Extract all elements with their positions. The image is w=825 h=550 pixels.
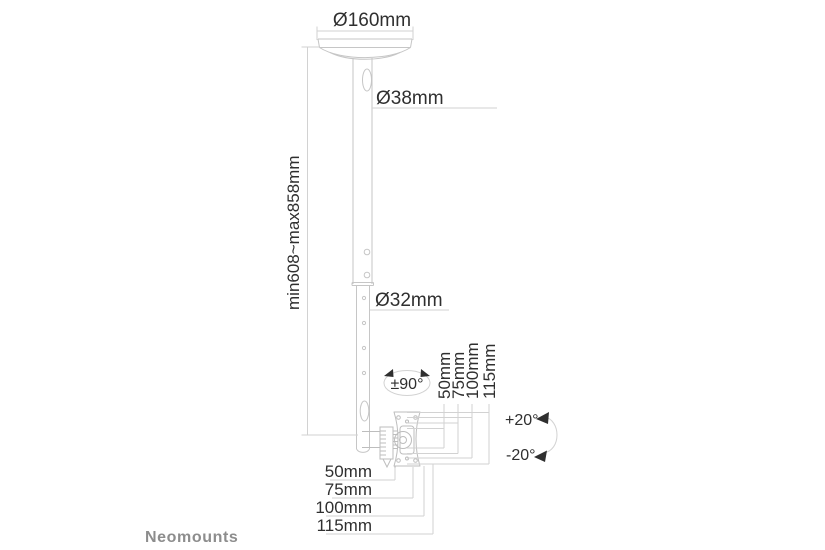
- height-range-label: min608~max858mm: [284, 156, 303, 311]
- upper-pole-diameter-label: Ø38mm: [376, 88, 444, 109]
- height-hole: [362, 371, 365, 374]
- vesa-horizontal-label-75: 75mm: [325, 480, 372, 499]
- ceiling-mount-diagram: Ø160mm Ø38mm Ø32mm min608~max858mm ±9: [0, 0, 825, 550]
- tilt-up-label: +20°: [505, 412, 539, 429]
- rotation-label: ±90°: [391, 376, 424, 393]
- brand-logo: Neomounts: [145, 529, 238, 546]
- lower-pole-diameter-dimension: Ø32mm: [370, 290, 449, 311]
- height-hole: [362, 296, 365, 299]
- vesa-screw-hole: [414, 459, 418, 463]
- cable-hole-top: [363, 69, 372, 91]
- adjust-hole: [364, 249, 370, 255]
- vesa-horizontal-label-115: 115mm: [317, 516, 372, 535]
- upper-pole-drawing: [352, 58, 374, 286]
- plate-diameter-label: Ø160mm: [333, 10, 411, 31]
- tilt-arrow-down-icon: [534, 451, 547, 463]
- lower-pole-drawing: [357, 286, 370, 453]
- vesa-horizontal-dimensions: 50mm 75mm 100mm 115mm: [315, 462, 433, 535]
- rotation-indicator: ±90°: [384, 369, 430, 396]
- height-hole: [362, 346, 365, 349]
- vesa-vertical-label-115: 115mm: [480, 344, 499, 399]
- vesa-screw-hole: [397, 459, 401, 463]
- vesa-screw-hole: [397, 416, 401, 420]
- cable-hole-bottom: [360, 401, 369, 421]
- vesa-vertical-dimensions: 50mm 75mm 100mm 115mm: [407, 342, 499, 464]
- mount-head-drawing: [362, 412, 420, 467]
- lower-pole-diameter-label: Ø32mm: [375, 290, 443, 311]
- tilt-down-label: -20°: [506, 447, 536, 464]
- tilt-indicator: +20° -20°: [505, 412, 557, 464]
- vesa-horizontal-label-50: 50mm: [325, 462, 372, 481]
- adjust-hole: [364, 272, 370, 278]
- height-range-dimension: min608~max858mm: [284, 47, 358, 435]
- upper-pole-diameter-dimension: Ø38mm: [372, 88, 497, 109]
- height-hole: [362, 321, 365, 324]
- ball-joint: [395, 432, 412, 449]
- clamp-knob: [383, 459, 391, 467]
- vesa-horizontal-label-100: 100mm: [315, 498, 372, 517]
- plate-diameter-dimension: Ø160mm: [317, 10, 413, 40]
- diagram-page: Ø160mm Ø38mm Ø32mm min608~max858mm ±9: [0, 0, 825, 550]
- ball-joint-center: [400, 437, 407, 444]
- ceiling-plate-drawing: [318, 39, 412, 59]
